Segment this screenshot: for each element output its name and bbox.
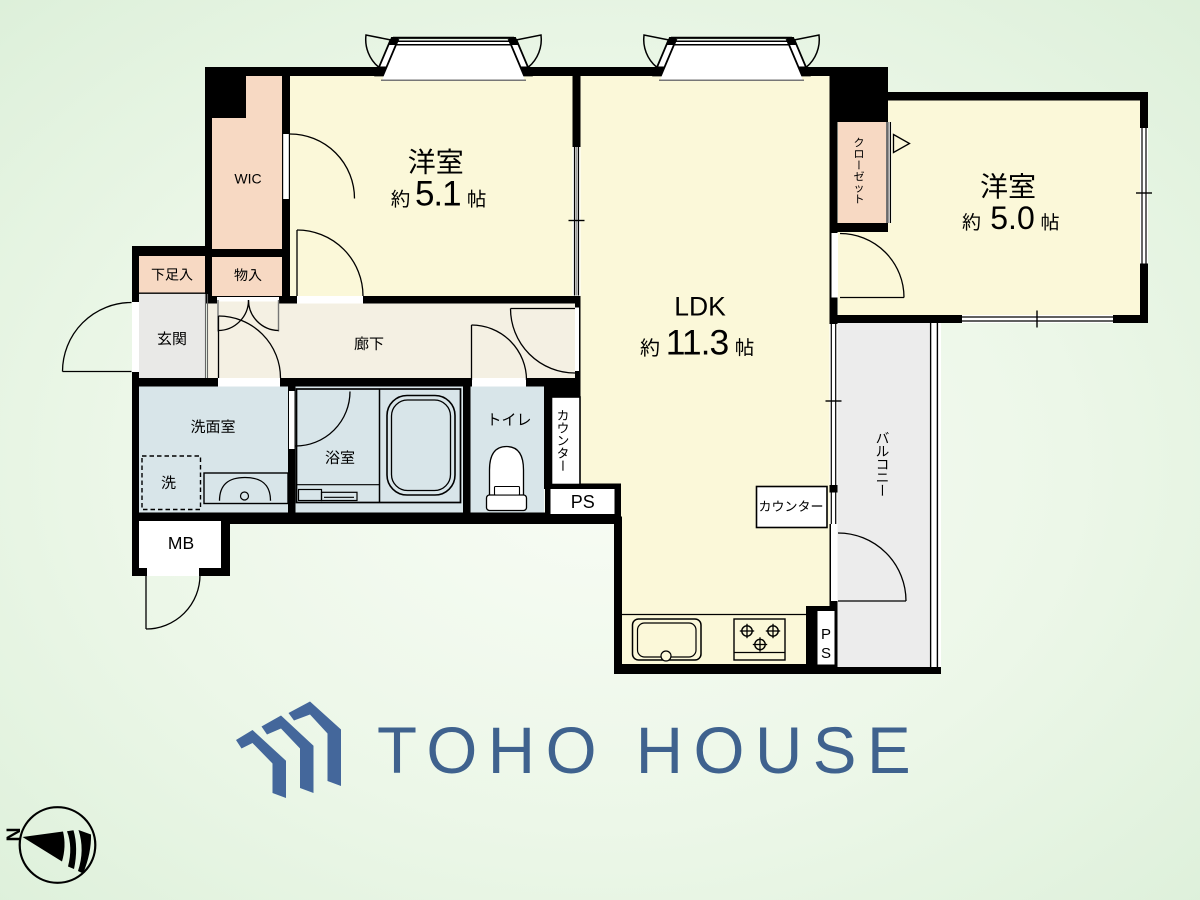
svg-text:LDK: LDK	[674, 291, 726, 321]
svg-text:5.0: 5.0	[990, 200, 1034, 236]
svg-text:11.3: 11.3	[666, 323, 729, 363]
svg-text:P: P	[821, 626, 831, 643]
svg-text:5.1: 5.1	[415, 175, 461, 214]
svg-text:PS: PS	[571, 492, 595, 512]
svg-text:N: N	[3, 827, 25, 841]
svg-text:TOHO HOUSE: TOHO HOUSE	[377, 714, 921, 787]
svg-text:MB: MB	[168, 533, 194, 553]
svg-text:WIC: WIC	[234, 171, 261, 187]
svg-text:S: S	[821, 645, 831, 662]
